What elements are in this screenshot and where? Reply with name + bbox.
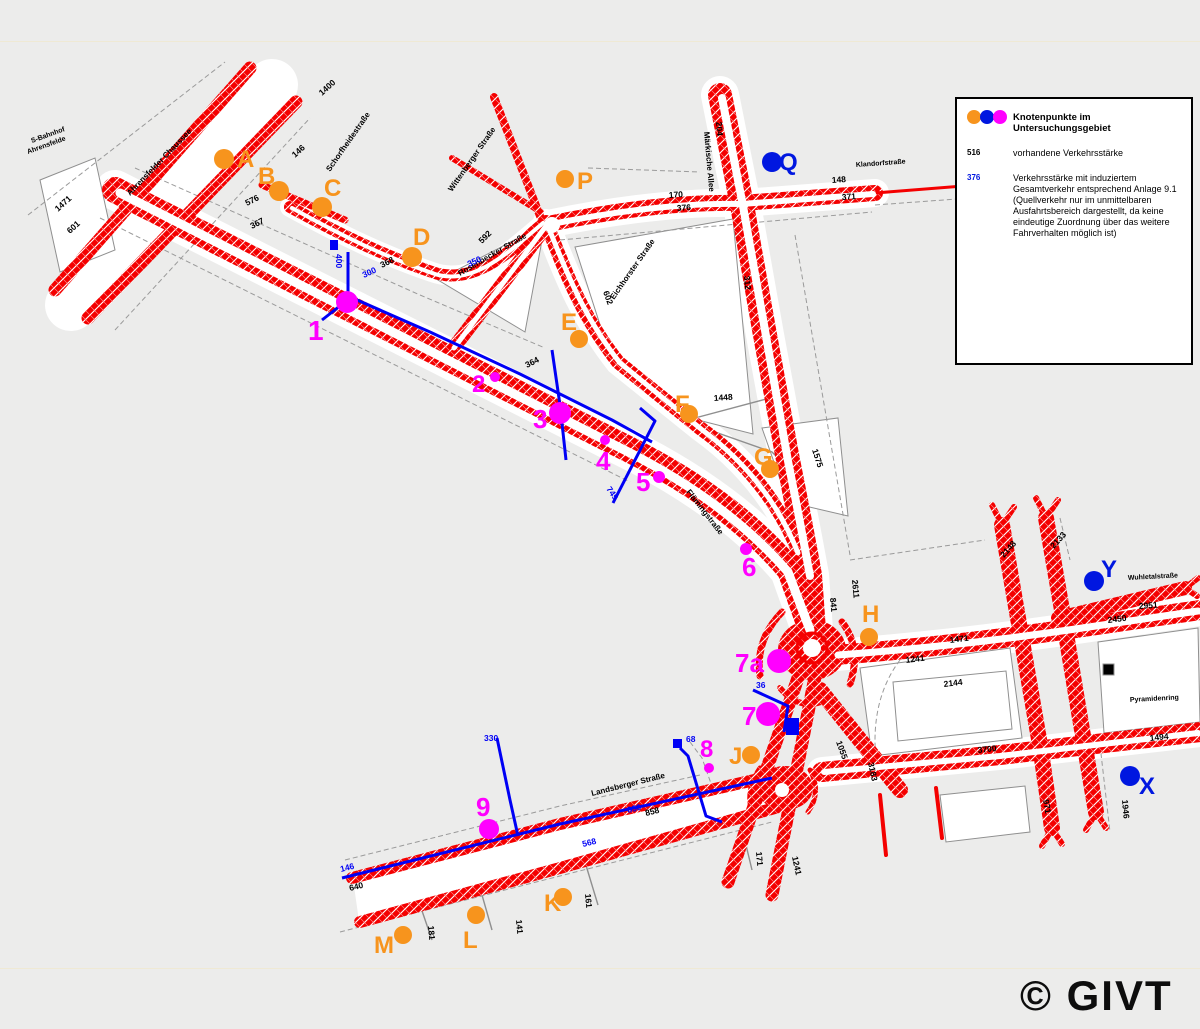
existing-volume-label: 181 <box>426 925 437 940</box>
marker-label-A: A <box>237 146 254 173</box>
existing-volume-label: 171 <box>754 851 765 866</box>
existing-volume-text: vorhandene Verkehrsstärke <box>1013 148 1123 159</box>
orange-node-icon <box>967 110 981 124</box>
existing-volume-label: 1946 <box>1120 799 1132 819</box>
legend-title: Knotenpunkte im Untersuchungsgebiet <box>1013 110 1181 134</box>
existing-volume-label: 146 <box>290 142 307 159</box>
marker-label-5: 5 <box>636 467 650 497</box>
marker-M: M <box>374 926 412 959</box>
existing-volume-label: 1494 <box>1149 731 1169 743</box>
marker-K: K <box>544 888 572 917</box>
legend-node-dots <box>967 110 1013 124</box>
marker-label-X: X <box>1139 773 1155 800</box>
magenta-node-icon <box>993 110 1007 124</box>
marker-C: C <box>312 175 341 217</box>
existing-volume-label: 161 <box>583 893 594 908</box>
marker-circle-2 <box>490 372 500 382</box>
marker-label-C: C <box>324 175 341 202</box>
marker-8: 8 <box>700 736 714 773</box>
marker-Y: Y <box>1084 556 1117 591</box>
induced-volume-text: Verkehrsstärke mit induziertemGesamtverk… <box>1013 173 1177 239</box>
existing-volume-label: 204 <box>714 121 725 136</box>
induced-volume-text-line: Ausfahrtsbereich dargestellt, da keine <box>1013 206 1177 217</box>
induced-volume-label: 300 <box>361 265 378 280</box>
street-name-label: Wuhletalstraße <box>1128 572 1178 582</box>
existing-volume-label: 592 <box>476 228 493 245</box>
induced-volume-label: 68 <box>686 734 696 744</box>
marker-circle-3 <box>549 402 571 424</box>
marker-Q: Q <box>762 149 798 176</box>
marker-circle-8 <box>704 763 714 773</box>
marker-label-L: L <box>463 927 478 954</box>
marker-9: 9 <box>476 792 499 839</box>
copyright-watermark: © GIVT <box>1020 972 1195 1022</box>
induced-volume-label: 36 <box>756 680 766 690</box>
marker-label-2: 2 <box>472 371 485 398</box>
existing-volume-label: 2951 <box>1138 600 1158 611</box>
existing-volume-label: 141 <box>514 919 525 934</box>
marker-7a: 7a <box>735 648 791 678</box>
marker-label-G: G <box>754 444 773 471</box>
existing-volume-label: 312 <box>742 275 753 290</box>
existing-volume-label: 3700 <box>977 743 997 755</box>
legend-item-nodes: Knotenpunkte im Untersuchungsgebiet <box>967 110 1181 134</box>
marker-circle-X <box>1120 766 1140 786</box>
induced-volume-text-line: (Quellverkehr nur im unmittelbaren <box>1013 195 1177 206</box>
existing-volume-label: 1400 <box>317 77 338 97</box>
marker-circle-H <box>860 628 878 646</box>
marker-label-3: 3 <box>533 404 547 434</box>
induced-volume-text-line: Verkehrsstärke mit induziertem <box>1013 173 1177 184</box>
legend-item-induced: 376 Verkehrsstärke mit induziertemGesamt… <box>967 173 1181 239</box>
marker-label-H: H <box>862 601 879 628</box>
induced-volume-label: 330 <box>484 733 498 743</box>
existing-volume-sample: 516 <box>967 148 1013 157</box>
marker-circle-4 <box>600 435 610 445</box>
street-name-label: Klandorfstraße <box>856 159 906 169</box>
marker-label-B: B <box>258 163 275 190</box>
marker-X: X <box>1120 766 1155 800</box>
marker-label-7a: 7a <box>735 648 764 678</box>
road-vertical-right-b <box>1046 518 1096 812</box>
marker-circle-1 <box>336 291 358 313</box>
marker-label-9: 9 <box>476 792 490 822</box>
marker-J: J <box>729 743 760 770</box>
marker-circle-7a <box>767 649 791 673</box>
marker-circle-M <box>394 926 412 944</box>
street-name-label: Schorfheidestraße <box>324 110 372 173</box>
marker-B: B <box>258 163 289 201</box>
marker-label-D: D <box>413 224 430 251</box>
marker-P: P <box>556 168 593 195</box>
induced-volume-label: 400 <box>334 254 344 268</box>
marker-circle-P <box>556 170 574 188</box>
marker-label-4: 4 <box>596 446 611 476</box>
marker-circle-J <box>742 746 760 764</box>
marker-label-Q: Q <box>779 149 798 176</box>
induced-volume-text-line: Fahrverhalten möglich ist) <box>1013 228 1177 239</box>
existing-volume-label: 371 <box>841 191 856 202</box>
induced-volume-text-line: Gesamtverkehr entsprechend Anlage 9.1 <box>1013 184 1177 195</box>
existing-volume-label: 2611 <box>850 579 862 599</box>
marker-label-E: E <box>561 309 577 336</box>
existing-volume-label: 576 <box>243 192 260 207</box>
marker-label-7: 7 <box>742 701 756 731</box>
marker-L: L <box>463 906 485 954</box>
existing-volume-label: 170 <box>668 189 683 200</box>
traffic-volume-map-page: S-BahnhofAhrensfeldeAhrensfelder Chausse… <box>0 0 1200 1029</box>
marker-circle-A <box>214 149 234 169</box>
legend-box: Knotenpunkte im Untersuchungsgebiet 516 … <box>955 97 1193 365</box>
existing-volume-label: 364 <box>523 354 540 369</box>
existing-volume-label: 1448 <box>713 392 733 403</box>
marker-label-F: F <box>675 391 690 418</box>
blue-node-icon <box>980 110 994 124</box>
marker-label-Y: Y <box>1101 556 1117 583</box>
induced-volume-label: 749 <box>604 484 620 502</box>
existing-volume-label: 367 <box>248 215 265 230</box>
marker-label-8: 8 <box>700 736 713 763</box>
marker-label-K: K <box>544 890 562 917</box>
marker-7: 7 <box>742 701 780 731</box>
marker-label-P: P <box>577 168 593 195</box>
marker-label-J: J <box>729 743 742 770</box>
existing-volume-label: 841 <box>828 597 839 612</box>
induced-volume-text-line: eindeutige Zuordnung über das weitere <box>1013 217 1177 228</box>
existing-volume-label: 1241 <box>790 855 804 876</box>
marker-circle-9 <box>479 819 499 839</box>
marker-circle-7 <box>756 702 780 726</box>
marker-circle-5 <box>653 471 665 483</box>
marker-H: H <box>860 601 879 646</box>
marker-label-6: 6 <box>742 552 756 582</box>
marker-label-1: 1 <box>308 315 324 346</box>
marker-circle-L <box>467 906 485 924</box>
marker-label-M: M <box>374 932 394 959</box>
existing-volume-label: 376 <box>676 202 691 213</box>
existing-volume-label: 148 <box>831 174 846 185</box>
street-name-label: Landsberger Straße <box>590 771 666 798</box>
legend-item-existing: 516 vorhandene Verkehrsstärke <box>967 148 1181 159</box>
induced-volume-sample: 376 <box>967 173 1013 182</box>
